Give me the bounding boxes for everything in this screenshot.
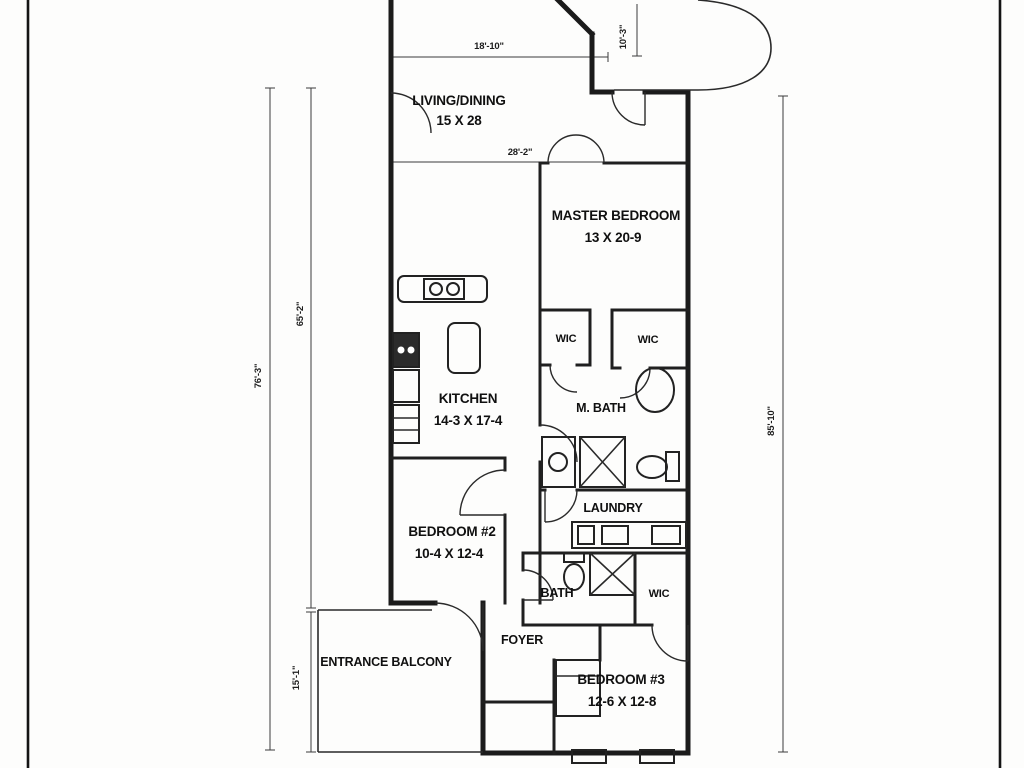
room-label-foyer: FOYER (501, 633, 543, 647)
room-dims-living-dining: 15 X 28 (436, 113, 482, 128)
room-dims-bedroom-2: 10-4 X 12-4 (415, 546, 484, 561)
dim-label-top-width: 18'-10" (474, 41, 504, 52)
dim-label-living-width: 28'-2" (508, 147, 533, 158)
washer-icon (602, 526, 628, 544)
room-label-bedroom-2: BEDROOM #2 (408, 524, 495, 539)
oven-knob-icon (408, 347, 415, 354)
laundry-sink (578, 526, 594, 544)
room-label-wic-1: WIC (556, 333, 577, 345)
toilet-icon (637, 456, 667, 478)
cabinet-shelf-lines (393, 418, 419, 430)
sink-icon (549, 453, 567, 471)
dim-label-left-outer-height: 76'-3" (253, 364, 264, 389)
dryer-icon (652, 526, 680, 544)
vanity (542, 437, 575, 487)
room-label-master-bedroom: MASTER BEDROOM (552, 208, 680, 223)
garden-tub-icon (636, 368, 674, 412)
shower-x-icon (580, 437, 625, 487)
room-label-laundry: LAUNDRY (583, 501, 643, 515)
burner-icon (447, 283, 459, 295)
page-border-lines (28, 0, 1000, 768)
kitchen-island (448, 323, 480, 373)
master-bath-fixtures (542, 368, 679, 487)
floor-plan-drawing: LIVING/DINING 15 X 28 MASTER BEDROOM 13 … (0, 0, 1024, 768)
room-label-bedroom-3: BEDROOM #3 (577, 672, 665, 687)
dim-label-balcony-depth: 10'-3" (618, 25, 629, 50)
burner-icon (430, 283, 442, 295)
pantry-cabinet (393, 405, 419, 443)
room-dims-master-bedroom: 13 X 20-9 (585, 230, 642, 245)
room-label-kitchen: KITCHEN (439, 391, 498, 406)
entrance-balcony-railing (318, 610, 483, 752)
refrigerator (393, 370, 419, 402)
room-label-wic-3: WIC (649, 588, 670, 600)
dim-label-right-height: 85'-10" (766, 406, 777, 436)
oven-knob-icon (398, 347, 405, 354)
room-dims-bedroom-3: 12-6 X 12-8 (588, 694, 657, 709)
wall-oven (393, 333, 419, 367)
room-label-bath-2: BATH (541, 586, 574, 600)
dim-label-left-inner-height: 65'-2" (295, 302, 306, 327)
shower-x-icon (590, 553, 635, 595)
floor-plan-page: LIVING/DINING 15 X 28 MASTER BEDROOM 13 … (0, 0, 1024, 768)
dim-label-balcony-height: 15'-1" (291, 666, 302, 691)
room-label-master-bath: M. BATH (576, 401, 626, 415)
top-balcony-outline (614, 0, 771, 90)
room-label-entrance-balcony: ENTRANCE BALCONY (320, 655, 452, 669)
room-dims-kitchen: 14-3 X 17-4 (434, 413, 503, 428)
bath-2-fixtures (564, 553, 635, 595)
room-label-wic-2: WIC (638, 334, 659, 346)
room-label-living-dining: LIVING/DINING (412, 93, 505, 108)
laundry-fixtures (572, 522, 686, 548)
